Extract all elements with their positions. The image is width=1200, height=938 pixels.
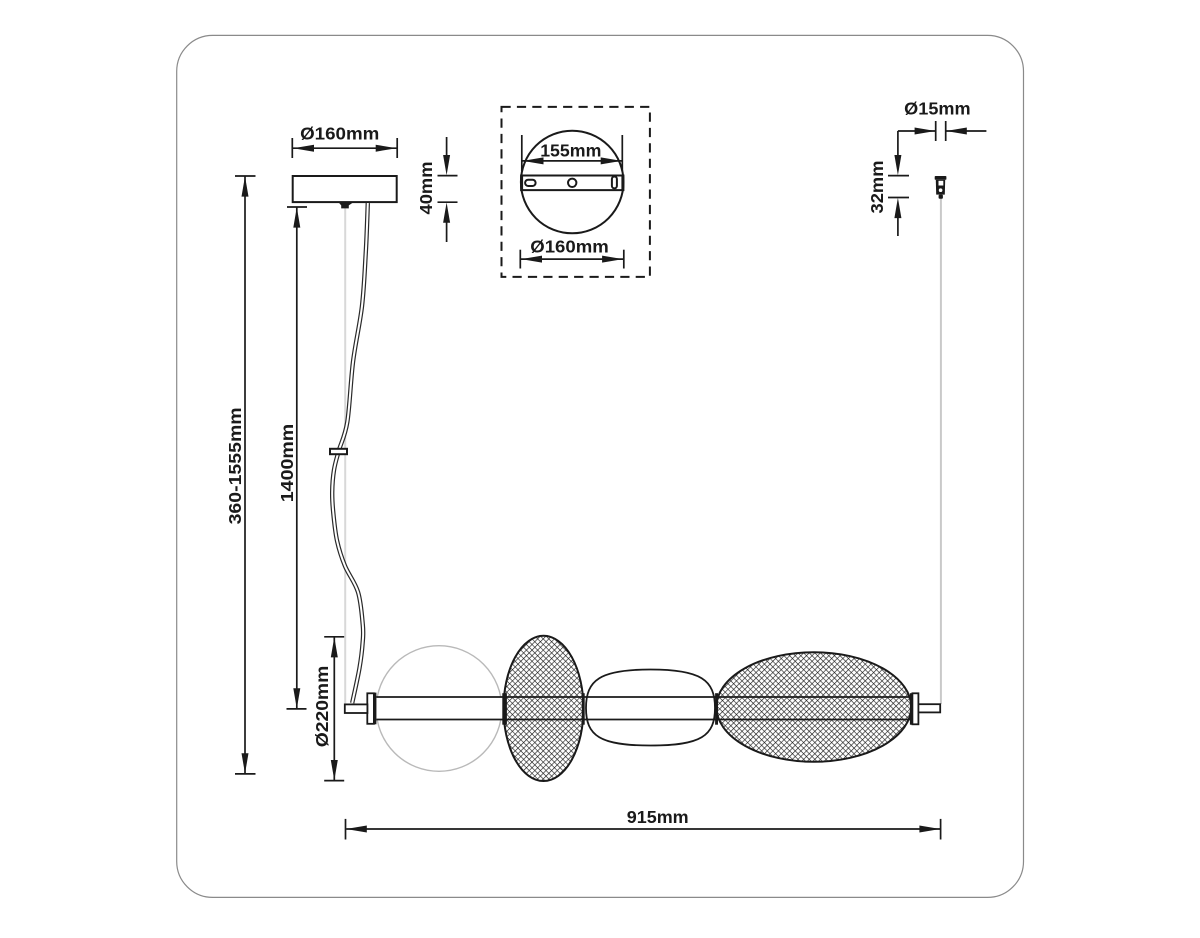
svg-text:360-1555mm: 360-1555mm — [225, 407, 245, 524]
svg-text:Ø160mm: Ø160mm — [530, 236, 609, 256]
svg-text:155mm: 155mm — [540, 141, 601, 161]
svg-text:Ø220mm: Ø220mm — [312, 666, 332, 748]
svg-text:915mm: 915mm — [627, 807, 689, 827]
svg-text:Ø160mm: Ø160mm — [300, 123, 379, 143]
svg-text:32mm: 32mm — [867, 161, 887, 214]
svg-text:40mm: 40mm — [416, 162, 436, 215]
svg-text:1400mm: 1400mm — [277, 424, 297, 502]
svg-text:Ø15mm: Ø15mm — [904, 99, 970, 119]
